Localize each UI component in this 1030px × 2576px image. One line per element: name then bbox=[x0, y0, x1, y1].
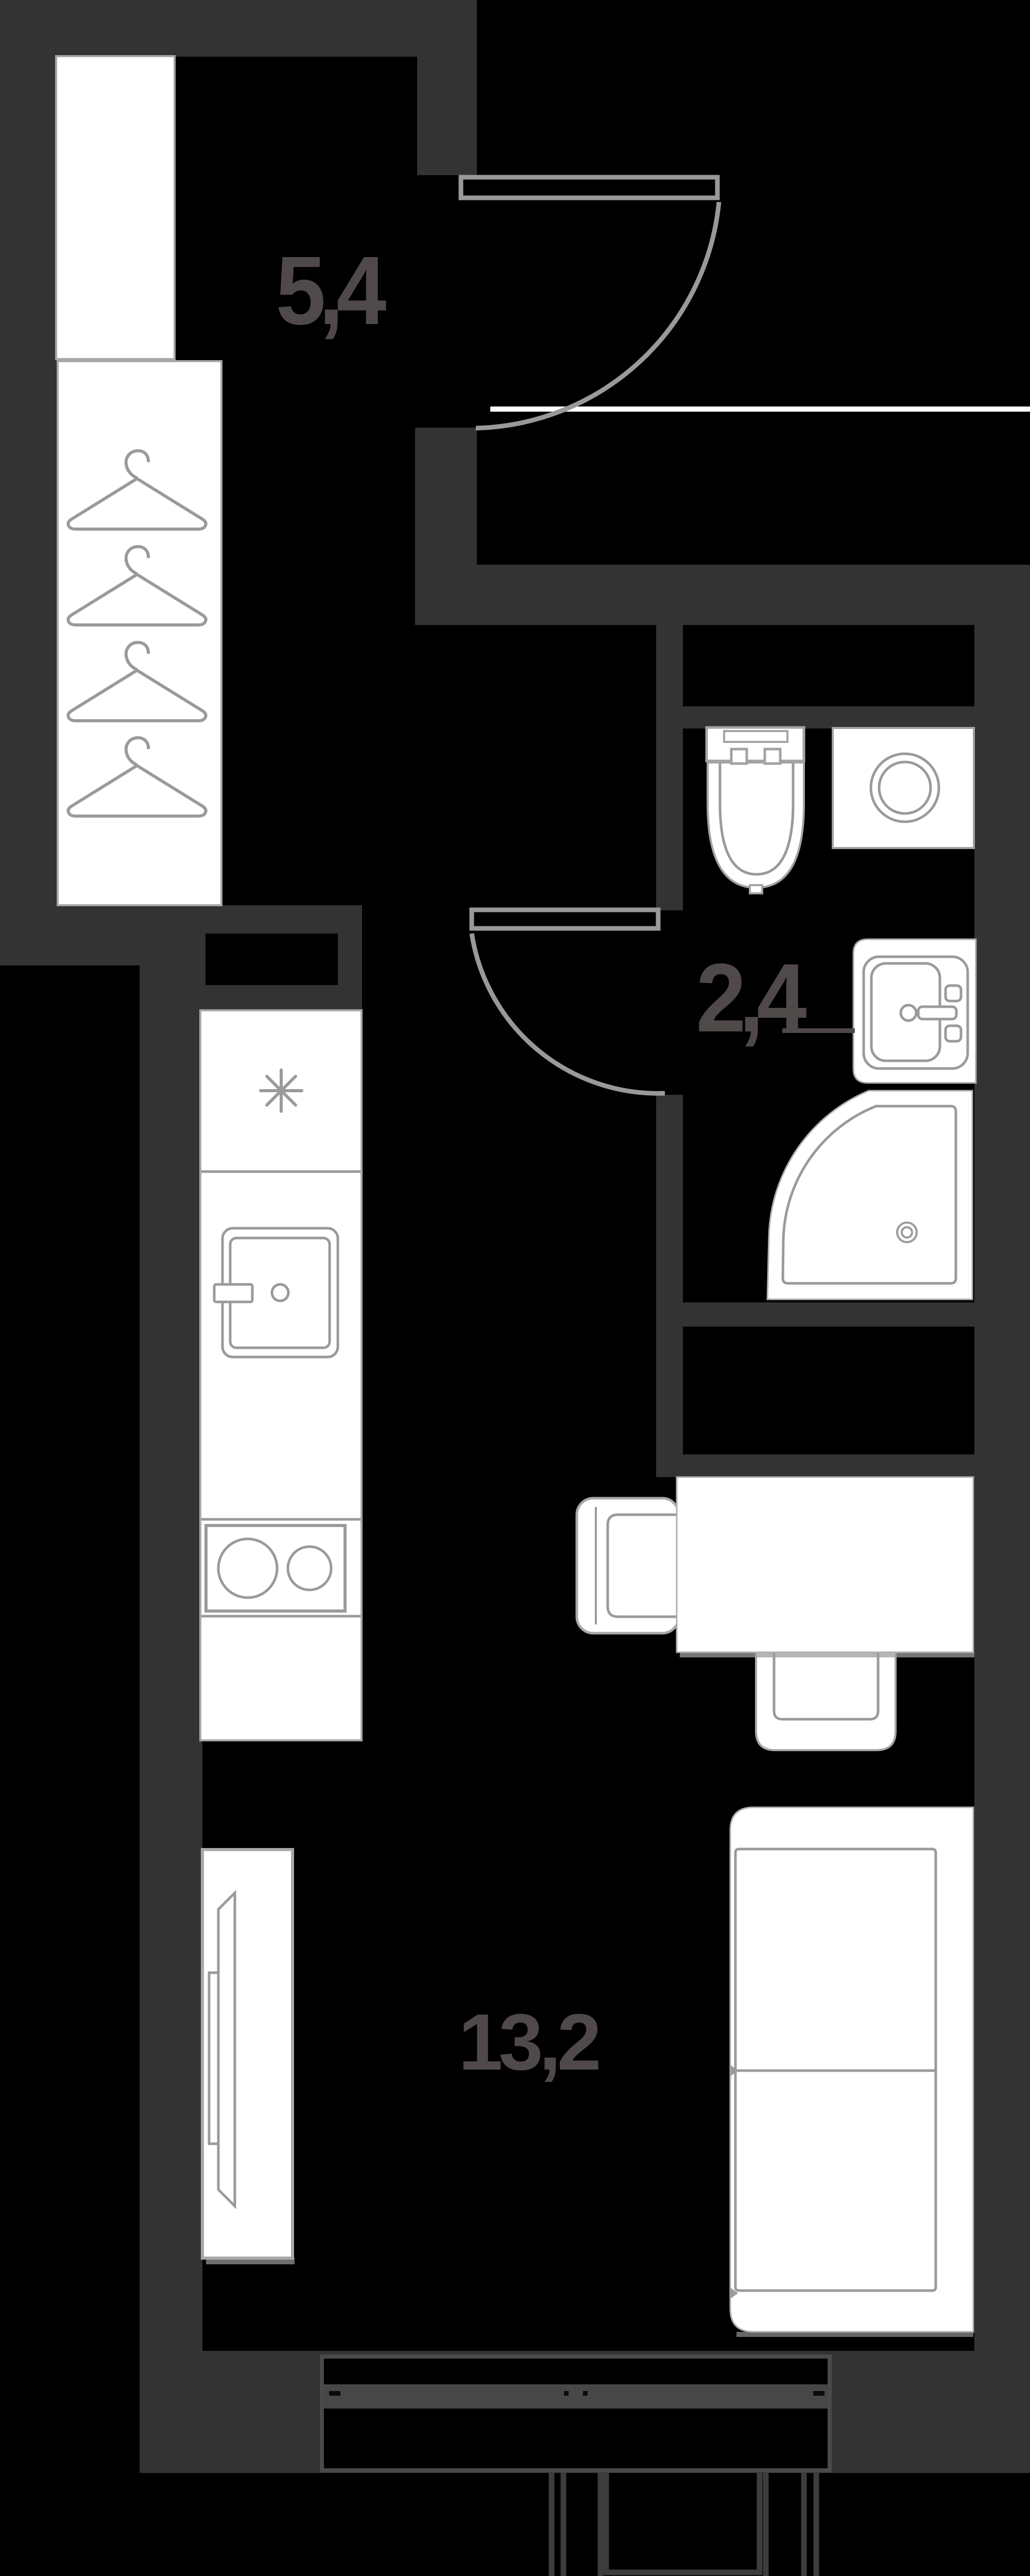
svg-text:5,4: 5,4 bbox=[276, 236, 386, 345]
svg-text:2,4: 2,4 bbox=[696, 943, 806, 1053]
svg-text:13,2: 13,2 bbox=[458, 1997, 598, 2087]
